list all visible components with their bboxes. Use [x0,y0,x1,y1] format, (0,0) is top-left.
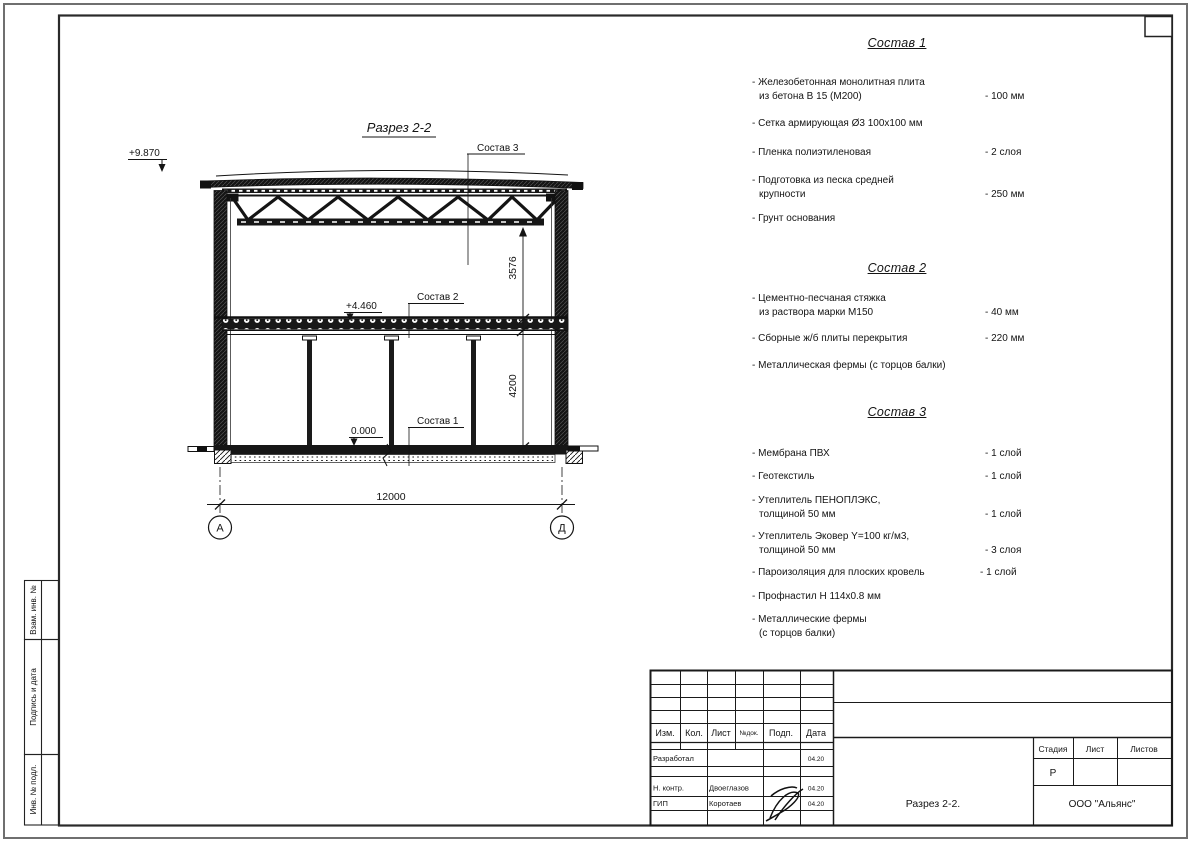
stamp-company: ООО "Альянс" [1069,799,1136,810]
ground-slab [188,444,598,466]
list-item: - Железобетонная монолитная плита из бет… [752,76,1057,104]
stamp-stage-value: Р [1050,768,1057,779]
section-view: 3576 4200 12000 А Д +9.870 +4.460 [128,120,598,539]
list-item: - Профнастил Н 114х0.8 мм [752,590,1057,604]
svg-text:0.000: 0.000 [351,426,376,437]
list-item: - Цементно-песчаная стяжка из раствора м… [752,292,1057,320]
svg-text:+4.460: +4.460 [346,301,377,312]
list-item: - Сетка армирующая Ø3 100х100 мм [752,117,1057,131]
stamp-col-izm: Изм. [655,728,674,738]
svg-text:Состав 3: Состав 3 [477,143,519,154]
svg-text:+9.870: +9.870 [129,148,160,159]
svg-text:Состав 2: Состав 2 [417,292,459,303]
callout-sostav3: Состав 3 [467,143,525,265]
composition-2-title: Состав 2 [745,262,1049,276]
stamp-sheet-label: Лист [1086,744,1105,754]
signature-scribble [766,787,803,821]
list-item: - Утеплитель Эковер Y=100 кг/м3, толщино… [752,530,1057,558]
dim-floor-height: 4200 [507,374,519,398]
svg-text:Состав 1: Состав 1 [417,416,459,427]
roof-truss [225,194,562,226]
columns [303,336,481,446]
list-item: - Металлические фермы (с торцов балки) [752,613,1057,641]
callout-sostav2: Состав 2 [408,292,464,338]
elevation-arrow [159,164,166,172]
stamp-col-podp: Подп. [769,728,793,738]
composition-3-title: Состав 3 [745,406,1049,420]
stamp-col-data: Дата [806,728,826,738]
stamp-date-gip: 04.20 [808,801,825,808]
sidebar-label-podpis: Подпись и дата [29,668,38,726]
stamp-role-razrabotal: Разработал [653,754,694,763]
list-item: - Пароизоляция для плоских кровель - 1 с… [752,566,1057,580]
roof [200,170,583,193]
stamp-role-nkontr: Н. контр. [653,784,684,793]
list-item: - Грунт основания [752,212,1057,226]
stamp-sheets-label: Листов [1130,744,1158,754]
dim-truss-height: 3576 [507,256,519,280]
sidebar-label-inv: Инв. № подл. [29,765,38,815]
list-item: - Утеплитель ПЕНОПЛЭКС, толщиной 50 мм -… [752,494,1057,522]
list-item: - Подготовка из песка средней крупности … [752,174,1057,202]
sidebar-label-vzam: Взам. инв. № [29,585,38,635]
stamp-date-razrabotal: 04.20 [808,756,825,763]
stamp-col-kol: Кол. [685,728,703,738]
composition-panel: Состав 1 - Железобетонная монолитная пли… [745,0,1057,660]
composition-1-title: Состав 1 [745,37,1049,51]
corner-box [1145,17,1172,37]
span-dimension [207,467,575,539]
list-item: - Мембрана ПВХ - 1 слой [752,447,1057,461]
axis-letter-left: А [216,523,224,535]
stamp-col-list: Лист [711,728,731,738]
dim-arrow [519,227,527,237]
stamp-name-nkontr: Двоеглазов [709,784,749,793]
floor-slab [214,318,568,335]
view-title: Разрез 2-2 [367,120,432,135]
list-item: - Металлическая фермы (с торцов балки) [752,359,1057,373]
stamp-doc-title: Разрез 2-2. [906,798,960,810]
list-item: - Сборные ж/б плиты перекрытия - 220 мм [752,332,1057,346]
stamp-date-nkontr: 04.20 [808,786,825,793]
stamp-role-gip: ГИП [653,799,668,808]
stamp-name-gip: Коротаев [709,799,741,808]
list-item: - Пленка полиэтиленовая - 2 слоя [752,146,1057,160]
stamp-col-ndok: №док. [739,730,758,737]
dim-span: 12000 [376,491,405,503]
list-item: - Геотекстиль - 1 слой [752,470,1057,484]
drawing-sheet: Взам. инв. № Подпись и дата Инв. № подл. [0,0,1191,842]
elevation-roof: +9.870 [128,148,167,172]
stamp-stage-label: Стадия [1039,744,1068,754]
elevation-ground: 0.000 [349,426,383,446]
elevation-arrow [351,439,358,447]
axis-letter-right: Д [558,523,566,535]
